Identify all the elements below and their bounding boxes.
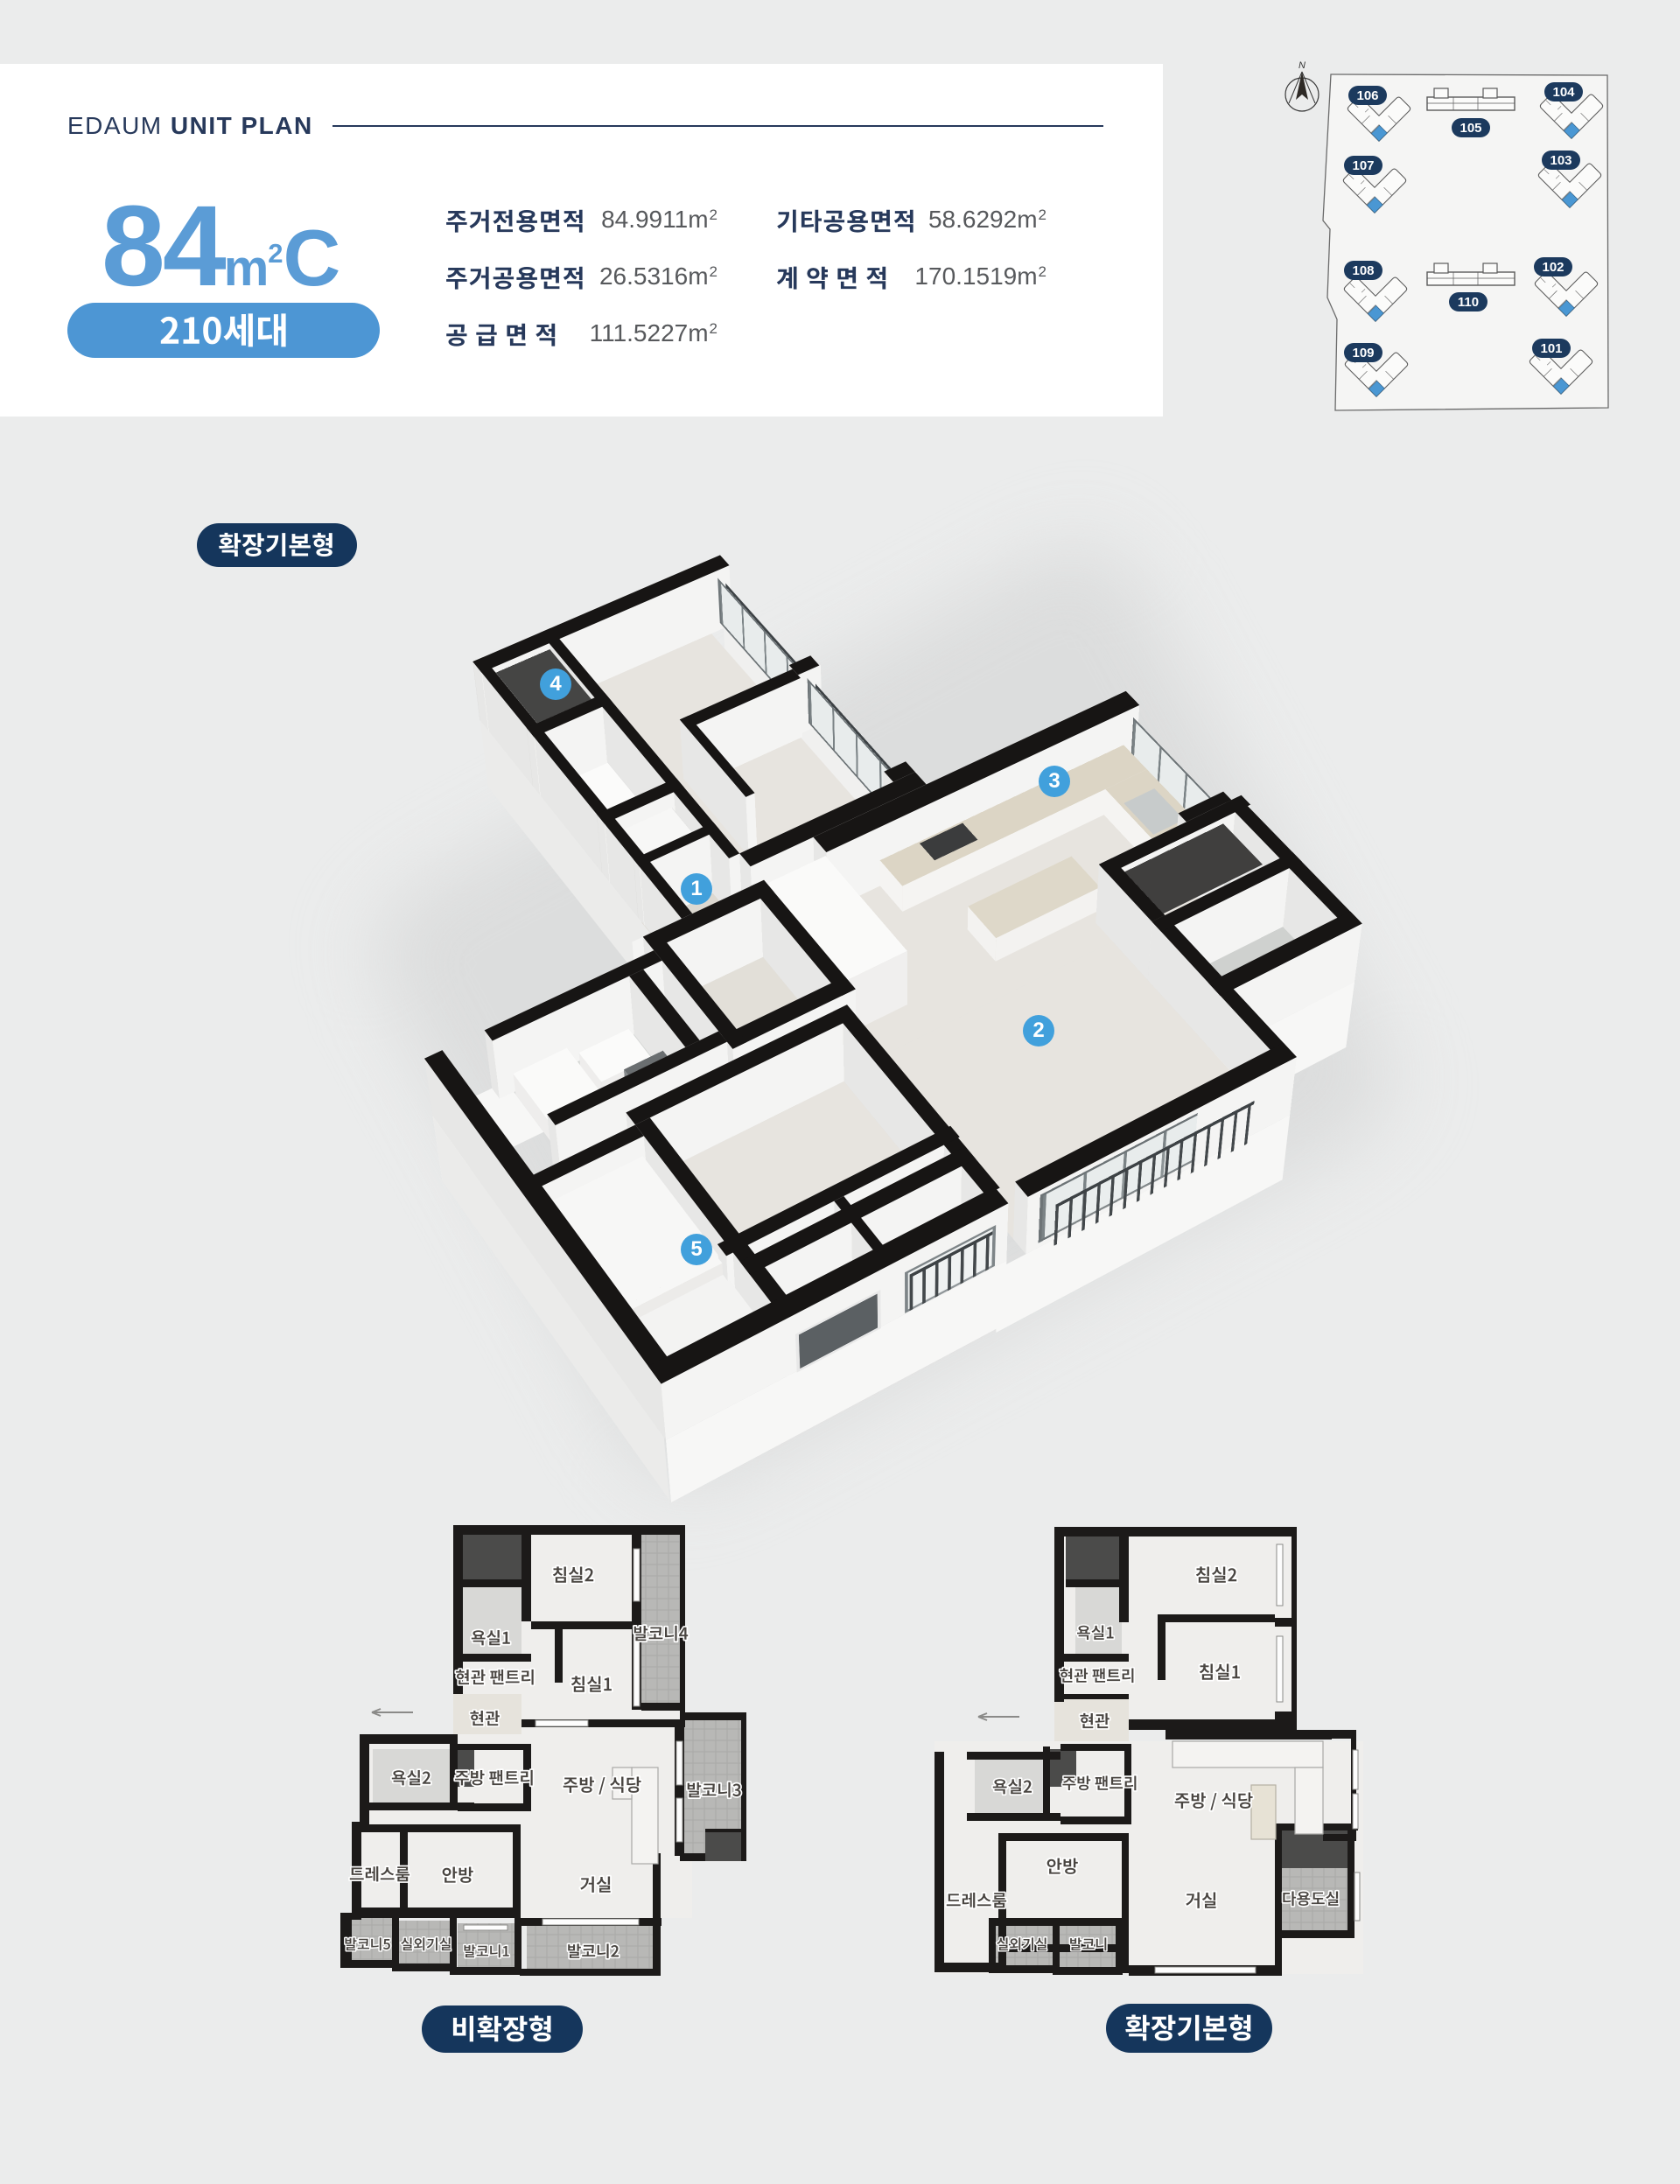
svg-text:108: 108 — [1352, 263, 1374, 278]
svg-text:107: 107 — [1352, 158, 1374, 173]
svg-text:N: N — [1298, 60, 1305, 71]
svg-text:109: 109 — [1352, 346, 1374, 360]
svg-text:106: 106 — [1356, 88, 1378, 103]
svg-text:102: 102 — [1542, 260, 1564, 275]
svg-text:101: 101 — [1540, 341, 1562, 356]
svg-text:103: 103 — [1550, 153, 1571, 168]
svg-text:104: 104 — [1552, 85, 1575, 100]
svg-text:105: 105 — [1459, 121, 1481, 136]
svg-text:110: 110 — [1458, 295, 1479, 310]
